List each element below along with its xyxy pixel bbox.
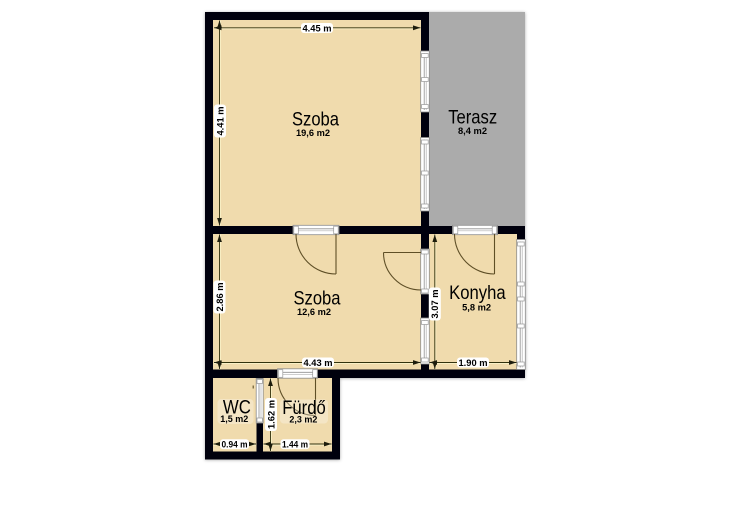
svg-text:8,4 m2: 8,4 m2 — [458, 126, 487, 137]
svg-text:2,3 m2: 2,3 m2 — [289, 415, 317, 426]
svg-text:4.43 m: 4.43 m — [304, 358, 333, 369]
svg-text:Szoba: Szoba — [294, 287, 341, 309]
svg-text:1.62 m: 1.62 m — [266, 400, 277, 429]
svg-text:12,6 m2: 12,6 m2 — [297, 307, 331, 318]
svg-text:2.86 m: 2.86 m — [215, 283, 226, 312]
svg-text:4.41 m: 4.41 m — [215, 107, 226, 136]
svg-text:4.45 m: 4.45 m — [303, 23, 332, 34]
svg-text:19,6 m2: 19,6 m2 — [296, 128, 330, 139]
svg-text:1,5 m2: 1,5 m2 — [220, 414, 248, 425]
svg-text:5,8 m2: 5,8 m2 — [462, 302, 491, 313]
svg-text:3.07 m: 3.07 m — [430, 290, 441, 319]
svg-text:Terasz: Terasz — [448, 107, 497, 129]
svg-text:1.44 m: 1.44 m — [282, 439, 308, 450]
svg-text:Szoba: Szoba — [292, 108, 339, 130]
svg-text:0.94 m: 0.94 m — [222, 439, 248, 450]
svg-text:1.90 m: 1.90 m — [459, 358, 488, 369]
svg-text:Konyha: Konyha — [449, 282, 506, 304]
